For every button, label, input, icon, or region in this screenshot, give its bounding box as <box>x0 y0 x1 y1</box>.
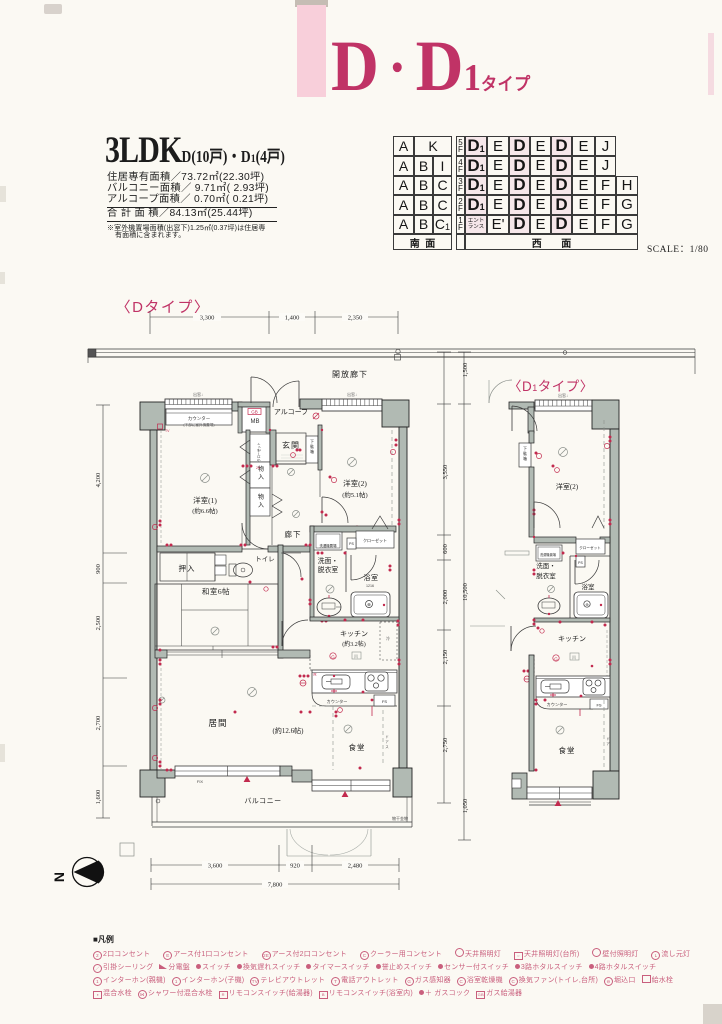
svg-text:和室6帖: 和室6帖 <box>202 586 230 596</box>
svg-text:物: 物 <box>258 493 264 501</box>
svg-text:FS: FS <box>596 703 601 708</box>
svg-text:7,800: 7,800 <box>268 882 283 889</box>
svg-text:PS: PS <box>349 542 354 546</box>
svg-text:600: 600 <box>442 544 449 554</box>
svg-text:居間: 居間 <box>208 718 227 728</box>
svg-text:洋室(2): 洋室(2) <box>343 478 367 488</box>
svg-text:洗濯機置場: 洗濯機置場 <box>320 543 338 548</box>
svg-text:出窓↓: 出窓↓ <box>193 391 203 397</box>
svg-text:箱: 箱 <box>310 449 314 454</box>
svg-text:箱: 箱 <box>523 456 527 461</box>
svg-text:GB: GB <box>251 410 258 415</box>
svg-text:洗面・: 洗面・ <box>318 556 338 565</box>
svg-text:下: 下 <box>523 447 527 451</box>
svg-text:920: 920 <box>290 863 300 870</box>
svg-text:玄関: 玄関 <box>282 440 300 450</box>
svg-text:物干金物: 物干金物 <box>392 815 408 821</box>
svg-text:2,750: 2,750 <box>442 738 449 753</box>
svg-text:ア: ア <box>606 741 610 746</box>
svg-text:食堂: 食堂 <box>559 745 576 755</box>
svg-text:(約3.2帖): (約3.2帖) <box>342 640 366 648</box>
svg-text:(下部に室外機置場): (下部に室外機置場) <box>183 422 214 427</box>
svg-text:1,500: 1,500 <box>462 363 469 378</box>
svg-text:1216: 1216 <box>366 584 374 588</box>
svg-text:G: G <box>331 655 335 660</box>
svg-text:FS: FS <box>382 699 387 704</box>
svg-text:2,150: 2,150 <box>442 650 449 665</box>
svg-text:ア: ア <box>385 739 389 744</box>
svg-text:洋室(1): 洋室(1) <box>193 495 217 505</box>
svg-text:押入: 押入 <box>179 563 196 573</box>
svg-text:PS: PS <box>578 561 583 565</box>
svg-text:下: 下 <box>310 440 314 444</box>
svg-text:ス: ス <box>385 744 389 749</box>
svg-text:3,600: 3,600 <box>208 863 223 870</box>
svg-text:廊下: 廊下 <box>285 529 302 539</box>
svg-text:浴室: 浴室 <box>582 582 596 591</box>
svg-text:開放廊下: 開放廊下 <box>332 369 368 379</box>
svg-text:食堂: 食堂 <box>349 742 366 752</box>
svg-text:カウンター: カウンター <box>547 701 568 708</box>
svg-text:10,500: 10,500 <box>462 583 469 601</box>
svg-text:脱衣室: 脱衣室 <box>318 565 339 574</box>
svg-text:トイレ: トイレ <box>255 556 275 563</box>
svg-text:キッチン: キッチン <box>558 635 586 643</box>
svg-text:2,700: 2,700 <box>95 716 102 731</box>
svg-text:ド: ド <box>385 735 389 739</box>
svg-text:3,300: 3,300 <box>200 315 215 322</box>
svg-text:(約5.1帖): (約5.1帖) <box>342 490 367 499</box>
svg-text:⊕: ⊕ <box>367 602 371 607</box>
svg-text:キッチン: キッチン <box>340 630 368 638</box>
svg-text:FIX: FIX <box>197 779 204 784</box>
svg-text:3,550: 3,550 <box>442 465 449 480</box>
svg-text:駄: 駄 <box>310 444 314 449</box>
svg-text:(約6.6帖): (約6.6帖) <box>192 506 217 515</box>
svg-text:1,400: 1,400 <box>285 315 300 322</box>
svg-text:24: 24 <box>256 466 260 470</box>
svg-text:凹: 凹 <box>354 654 358 659</box>
svg-text:MB: MB <box>251 419 260 425</box>
svg-text:入: 入 <box>258 502 264 509</box>
svg-text:G: G <box>554 657 558 662</box>
svg-text:カウンター: カウンター <box>188 415 211 422</box>
svg-text:ド: ド <box>606 737 610 741</box>
svg-text:1,600: 1,600 <box>95 790 102 805</box>
svg-text:洗濯機置場: 洗濯機置場 <box>540 552 557 557</box>
svg-text:入: 入 <box>258 474 264 481</box>
svg-text:TV: TV <box>165 429 170 433</box>
svg-text:バルコニー: バルコニー <box>244 797 281 805</box>
svg-text:冷: 冷 <box>386 635 390 641</box>
svg-text:駄: 駄 <box>523 451 527 456</box>
svg-text:1,050: 1,050 <box>462 799 469 814</box>
svg-text:クローゼット: クローゼット <box>579 545 601 550</box>
svg-text:〈D1タイプ〉: 〈D1タイプ〉 <box>508 379 594 394</box>
svg-text:2,480: 2,480 <box>348 863 363 870</box>
svg-text:2,350: 2,350 <box>348 315 363 322</box>
svg-text:⊕: ⊕ <box>585 602 588 607</box>
svg-text:カウンター: カウンター <box>327 698 348 705</box>
svg-text:N: N <box>51 872 67 882</box>
svg-text:洗面・: 洗面・ <box>536 561 556 570</box>
svg-text:出窓↓: 出窓↓ <box>347 391 357 397</box>
svg-text:900: 900 <box>95 564 102 574</box>
svg-text:浴室: 浴室 <box>364 573 379 582</box>
svg-text:出窓↓: 出窓↓ <box>558 392 568 398</box>
svg-text:凹: 凹 <box>572 655 576 660</box>
svg-text:2,000: 2,000 <box>442 590 449 605</box>
svg-text:クローゼット: クローゼット <box>256 442 261 461</box>
svg-text:4,200: 4,200 <box>95 473 102 488</box>
svg-text:2,500: 2,500 <box>95 616 102 631</box>
svg-text:脱衣室: 脱衣室 <box>536 571 556 580</box>
svg-text:(約12.6帖): (約12.6帖) <box>273 726 305 735</box>
svg-text:クローゼット: クローゼット <box>363 537 387 543</box>
svg-text:洋室(2): 洋室(2) <box>556 482 579 491</box>
